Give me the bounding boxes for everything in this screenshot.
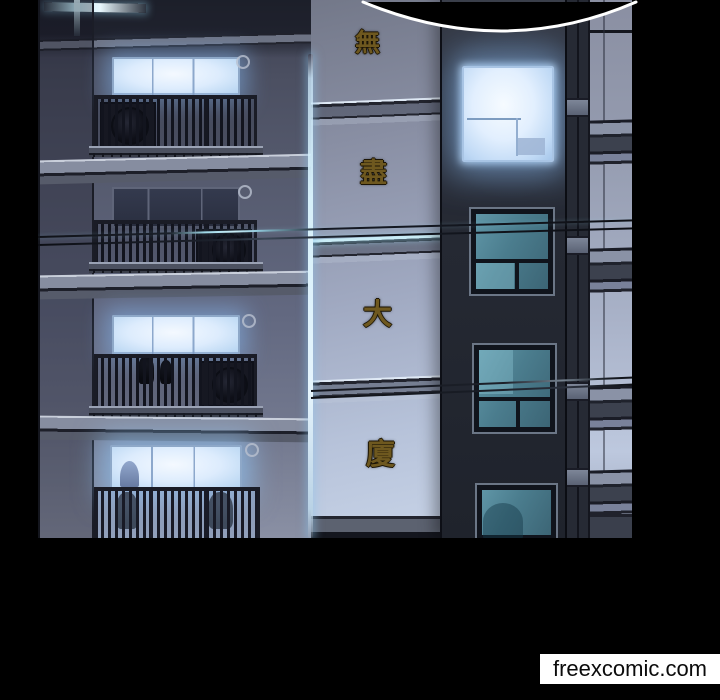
speech-bubble-outline [363, 2, 636, 31]
facade-band [588, 247, 634, 293]
building-sign-char-2: 盡 [360, 160, 387, 187]
facade-band [588, 119, 634, 165]
panel-right-margin [632, 0, 720, 538]
apartment-window-f3-lit [112, 315, 240, 356]
window-furniture-silhouette [518, 138, 545, 155]
vent-circle-f3 [242, 314, 256, 328]
pillar-line [577, 0, 579, 538]
column-floor-line [311, 235, 440, 266]
tower-window-glowing [462, 66, 554, 162]
glass-highlight [479, 350, 513, 394]
tower-pillar [565, 0, 590, 538]
pillar-tab [567, 468, 590, 487]
watermark-text: freexcomic.com [553, 658, 707, 680]
night-building-panel: 無 盡 大 廈 [0, 0, 720, 538]
balcony-railing-f1 [94, 95, 257, 153]
window-rail-line [467, 118, 521, 120]
vent-circle-f4 [245, 443, 259, 457]
facade-band [588, 469, 634, 515]
tower-window-teal-1 [469, 207, 555, 296]
glass-highlight [476, 263, 514, 289]
right-facade-column [588, 0, 634, 538]
window-divider [474, 397, 555, 401]
window-divider [516, 397, 520, 432]
floor-slab-3 [38, 416, 313, 443]
speech-bubble-bottom-arc [340, 0, 640, 60]
facade-bottom-band [590, 514, 634, 538]
panel-left-margin [0, 0, 38, 538]
building-sign-char-3: 大 [363, 300, 392, 329]
building-sign-char-4: 廈 [366, 440, 395, 469]
vent-circle-f1 [236, 55, 250, 69]
window-silhouette [120, 461, 139, 487]
glass-shadow [483, 503, 523, 538]
tower-window-teal-3 [475, 483, 558, 538]
tower-corner-column: 無 盡 大 廈 [311, 0, 440, 538]
balcony-base-f3 [89, 406, 263, 417]
pillar-tab [567, 236, 590, 255]
balcony-railing-f4 [94, 487, 260, 538]
corner-light-edge [308, 54, 313, 538]
window-divider [515, 259, 519, 294]
column-floor-line [311, 97, 440, 128]
vent-circle-f2 [238, 185, 252, 199]
balcony-railing-f3 [94, 354, 257, 413]
floor-slab-2 [38, 271, 313, 300]
pillar-tab [567, 98, 590, 117]
watermark-box: freexcomic.com [540, 654, 720, 684]
apartment-window-f4-lit [110, 445, 242, 491]
building-side-pillar [40, 0, 94, 538]
facade-band [588, 385, 634, 431]
comic-page: 無 盡 大 廈 [0, 0, 720, 700]
left-apartment-building [38, 0, 313, 538]
apartment-window-f1-lit [112, 57, 240, 97]
dark-tower-column [440, 0, 569, 538]
column-bottom-band [311, 516, 440, 538]
